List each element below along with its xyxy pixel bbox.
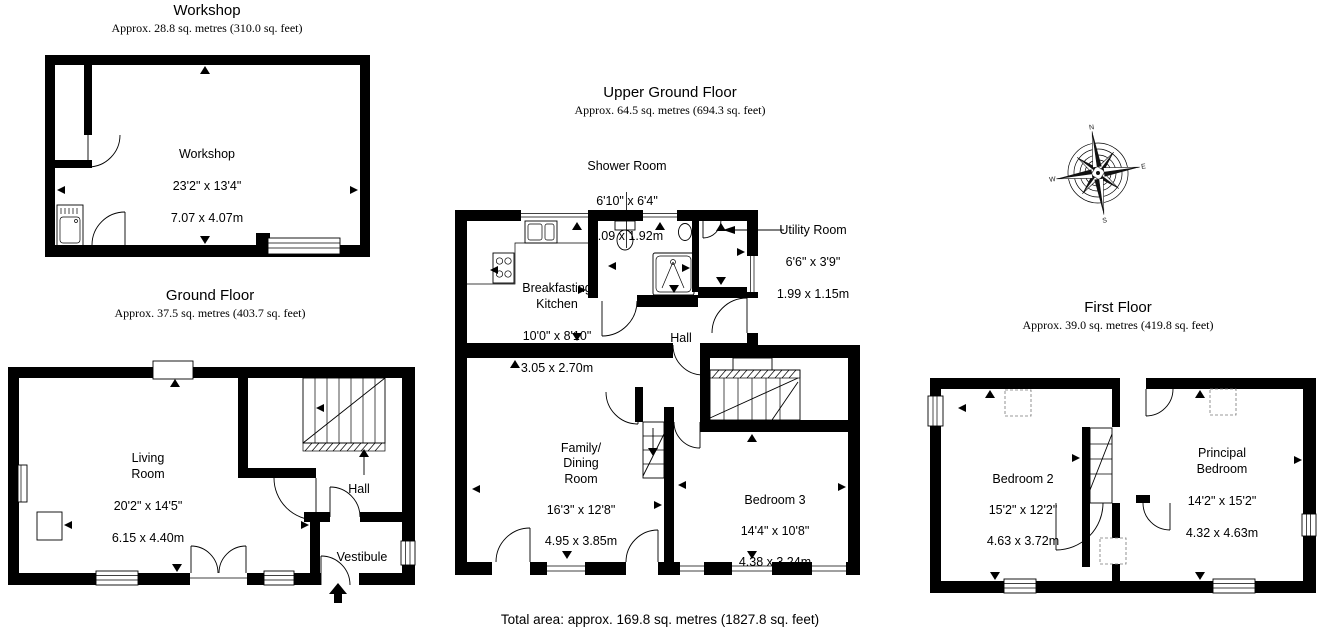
workshop-title: Workshop <box>57 2 357 19</box>
room-label-ground-hall: Hall <box>334 465 384 513</box>
compass-east-label: E <box>1141 163 1147 171</box>
room-name: Principal Bedroom <box>1152 445 1292 477</box>
first-floor-title: First Floor <box>968 299 1268 316</box>
room-label-vestibule: Vestibule <box>322 533 402 581</box>
room-label-bedroom2: Bedroom 2 15'2" x 12'2" 4.63 x 3.72m <box>953 456 1093 565</box>
ground-floor-area: Approx. 37.5 sq. metres (403.7 sq. feet) <box>60 306 360 320</box>
first-floor-header: First Floor Approx. 39.0 sq. metres (419… <box>968 299 1268 332</box>
kitchen-sink-icon <box>525 221 557 243</box>
room-name: Shower Room <box>565 158 689 176</box>
entrance-arrow <box>329 583 347 603</box>
workshop-doors <box>88 135 125 245</box>
workshop-window <box>268 238 340 254</box>
first-floor-area: Approx. 39.0 sq. metres (419.8 sq. feet) <box>968 318 1268 332</box>
room-dim-metric: 4.95 x 3.85m <box>520 534 642 550</box>
room-dim-imperial: 14'4" x 10'8" <box>705 524 845 540</box>
upper-ground-title: Upper Ground Floor <box>520 84 820 101</box>
sink-icon <box>57 205 83 247</box>
room-name: Hall <box>334 481 384 497</box>
compass-rose-icon: N E S W <box>1042 118 1157 228</box>
room-name: Family/ Dining Room <box>520 441 642 488</box>
upper-ground-header: Upper Ground Floor Approx. 64.5 sq. metr… <box>520 84 820 117</box>
first-stairs <box>1090 428 1112 503</box>
room-label-principal: Principal Bedroom 14'2" x 15'2" 4.32 x 4… <box>1152 429 1292 557</box>
room-dim-metric: 4.32 x 4.63m <box>1152 525 1292 541</box>
compass-south-label: S <box>1102 217 1108 225</box>
room-name: Bedroom 2 <box>953 472 1093 488</box>
room-dim-metric: 7.07 x 4.07m <box>147 210 267 226</box>
upper-main-stairs <box>710 370 800 420</box>
room-dim-imperial: 20'2" x 14'5" <box>88 498 208 514</box>
ground-floor-header: Ground Floor Approx. 37.5 sq. metres (40… <box>60 287 360 320</box>
room-label-bedroom3: Bedroom 3 14'4" x 10'8" 4.38 x 3.24m <box>705 477 845 586</box>
compass-north-label: N <box>1089 124 1095 132</box>
room-dim-metric: 4.38 x 3.24m <box>705 555 845 571</box>
room-label-upper-hall: Hall <box>650 314 712 362</box>
room-label-family: Family/ Dining Room 16'3" x 12'8" 4.95 x… <box>520 425 642 565</box>
room-name: Living Room <box>88 450 208 482</box>
room-name: Hall <box>650 330 712 346</box>
total-area-text: Total area: approx. 169.8 sq. metres (18… <box>0 612 1320 627</box>
room-dim-imperial: 15'2" x 12'2" <box>953 503 1093 519</box>
room-label-workshop: Workshop 23'2" x 13'4" 7.07 x 4.07m <box>147 130 267 242</box>
room-name: Breakfasting Kitchen <box>495 280 619 312</box>
workshop-area: Approx. 28.8 sq. metres (310.0 sq. feet) <box>57 21 357 35</box>
room-dim-imperial: 16'3" x 12'8" <box>520 503 642 519</box>
room-label-kitchen: Breakfasting Kitchen 10'0" x 8'10" 3.05 … <box>495 264 619 392</box>
room-dim-metric: 6.15 x 4.40m <box>88 530 208 546</box>
room-name: Bedroom 3 <box>705 493 845 509</box>
room-name: Vestibule <box>322 549 402 565</box>
room-dim-imperial: 14'2" x 15'2" <box>1152 493 1292 509</box>
room-dim-imperial: 23'2" x 13'4" <box>147 178 267 194</box>
upper-ground-area: Approx. 64.5 sq. metres (694.3 sq. feet) <box>520 103 820 117</box>
upper-small-stairs <box>643 422 664 478</box>
room-dim-metric: 3.05 x 2.70m <box>495 360 619 376</box>
floorplan-page: { "floors": { "workshop": { "title": "Wo… <box>0 0 1320 641</box>
ground-floor-title: Ground Floor <box>60 287 360 304</box>
toilet-icon <box>615 221 635 250</box>
ground-stairs <box>303 378 385 475</box>
room-dim-imperial: 10'0" x 8'10" <box>495 328 619 344</box>
room-label-living: Living Room 20'2" x 14'5" 6.15 x 4.40m <box>88 434 208 562</box>
workshop-header: Workshop Approx. 28.8 sq. metres (310.0 … <box>57 2 357 35</box>
room-dim-metric: 4.63 x 3.72m <box>953 534 1093 550</box>
basin-icon <box>679 224 692 241</box>
room-name: Workshop <box>147 146 267 162</box>
compass-west-label: W <box>1049 176 1057 184</box>
